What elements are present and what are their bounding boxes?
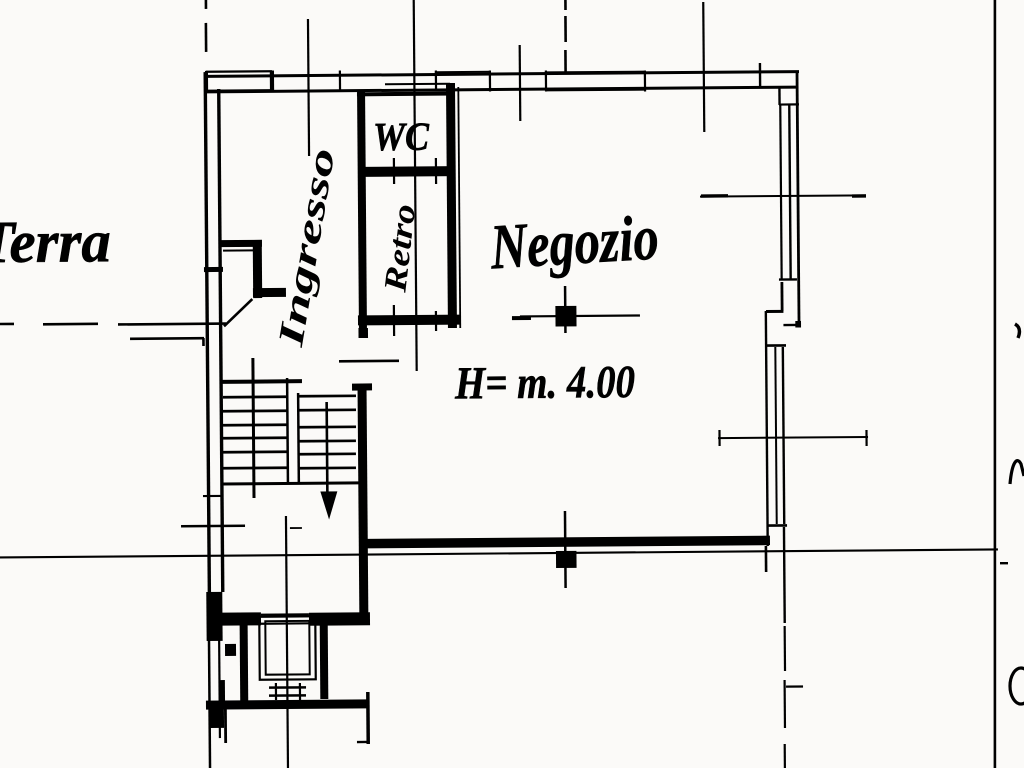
svg-text:Negozio: Negozio <box>488 201 661 282</box>
svg-text:WC: WC <box>373 114 431 159</box>
svg-text:H= m. 4.00: H= m. 4.00 <box>454 356 635 408</box>
svg-text:Terra: Terra <box>0 208 111 275</box>
